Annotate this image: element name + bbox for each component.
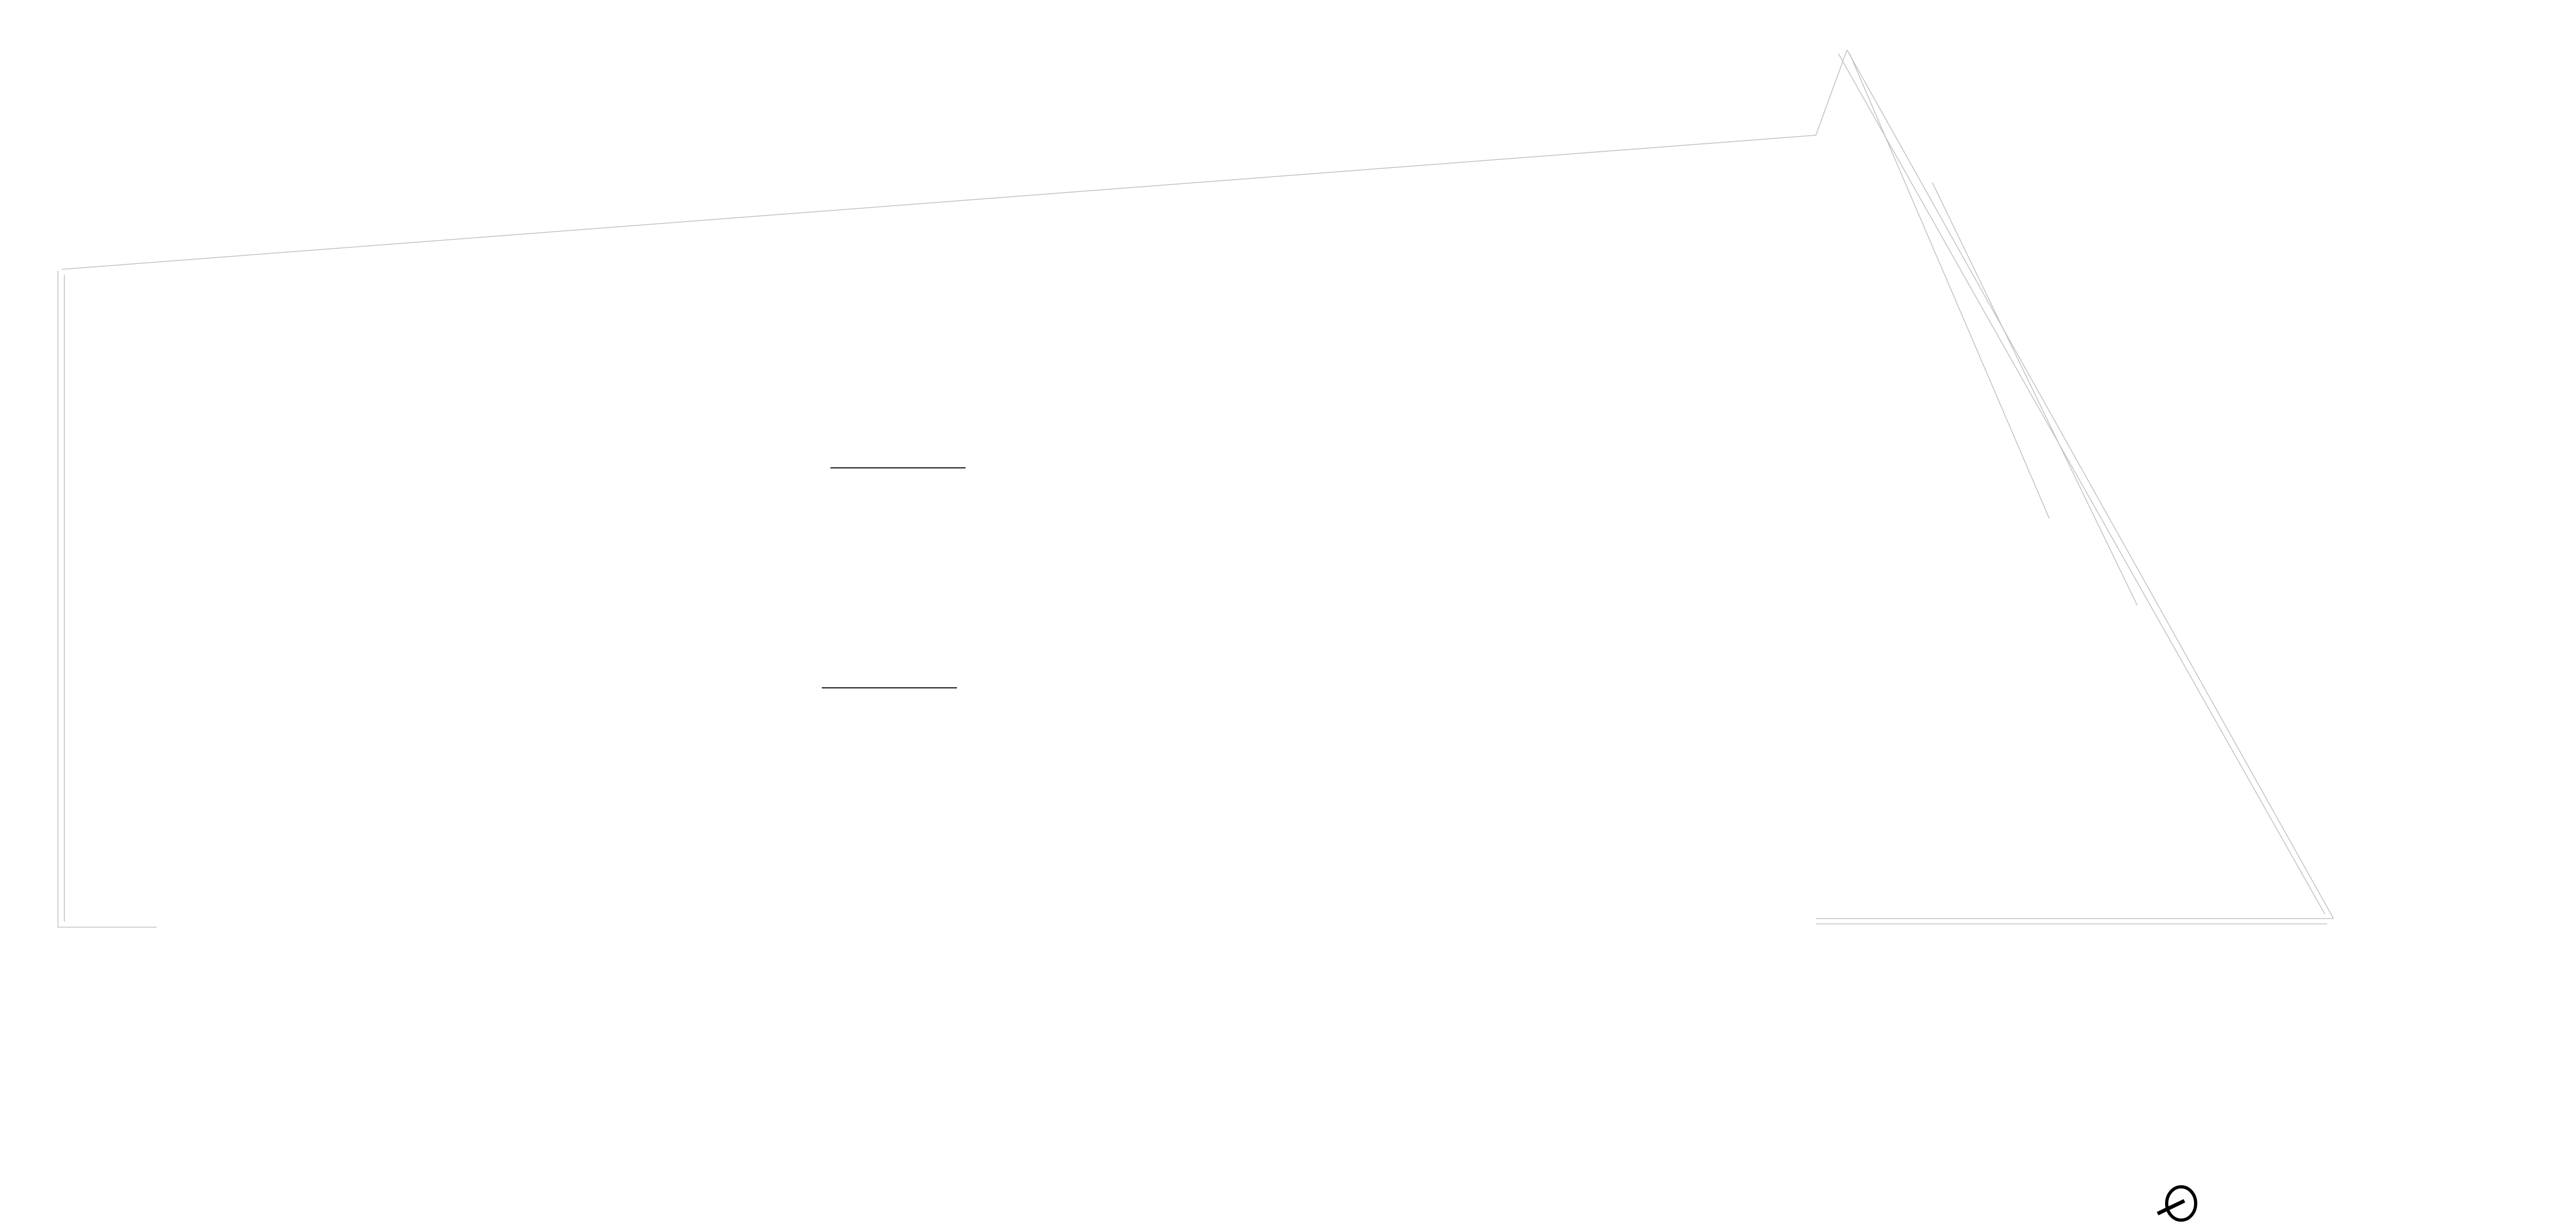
- site-boundary: [58, 50, 2334, 927]
- azotea-plan-drawing: [0, 0, 2576, 1226]
- north-arrow-icon: [2158, 1187, 2196, 1220]
- floor-plan-sheet: [0, 0, 2576, 1226]
- title-block: [2158, 1187, 2196, 1220]
